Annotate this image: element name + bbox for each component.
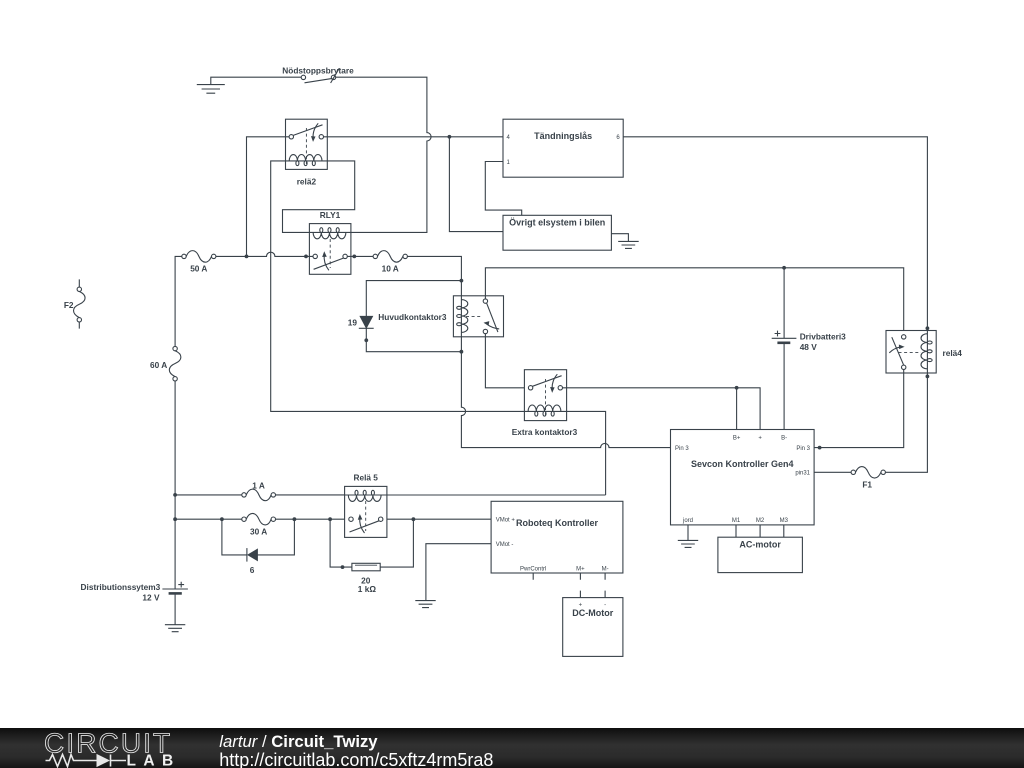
svg-text:Drivbatteri3: Drivbatteri3 — [800, 332, 846, 342]
svg-text:PwrContrl: PwrContrl — [520, 567, 546, 573]
svg-text:48 V: 48 V — [800, 342, 818, 352]
svg-text:60 A: 60 A — [150, 360, 167, 370]
svg-text:30 A: 30 A — [250, 526, 267, 536]
svg-text:50 A: 50 A — [190, 263, 207, 273]
svg-text:Relä 5: Relä 5 — [353, 473, 378, 483]
svg-text:DC-Motor: DC-Motor — [572, 608, 613, 618]
svg-text:M-: M- — [602, 567, 609, 573]
svg-text:M+: M+ — [576, 567, 585, 573]
svg-text:RLY1: RLY1 — [320, 210, 341, 220]
svg-text:Distributionssytem3: Distributionssytem3 — [81, 582, 161, 592]
svg-text:http://circuitlab.com/c5xftz4r: http://circuitlab.com/c5xftz4rm5ra8 — [219, 750, 493, 768]
svg-text:Roboteq Kontroller: Roboteq Kontroller — [516, 518, 598, 528]
svg-text:AC-motor: AC-motor — [739, 539, 781, 549]
svg-text:VMot -: VMot - — [496, 542, 514, 548]
svg-text:+: + — [758, 436, 762, 442]
svg-text:M2: M2 — [756, 518, 765, 524]
svg-text:Sevcon Kontroller Gen4: Sevcon Kontroller Gen4 — [691, 459, 794, 469]
svg-text:1 kΩ: 1 kΩ — [358, 584, 377, 594]
svg-text:M3: M3 — [780, 518, 789, 524]
svg-text:Huvudkontaktor3: Huvudkontaktor3 — [378, 312, 447, 322]
svg-text:pin31: pin31 — [795, 471, 810, 477]
svg-text:B+: B+ — [733, 436, 741, 442]
svg-text:1 A: 1 A — [252, 480, 265, 490]
svg-text:12 V: 12 V — [142, 592, 160, 602]
svg-text:relä4: relä4 — [943, 348, 963, 358]
svg-text:B-: B- — [781, 436, 787, 442]
svg-text:19: 19 — [348, 318, 358, 328]
svg-text:Pin 3: Pin 3 — [796, 446, 810, 452]
svg-text:Övrigt elsystem i bilen: Övrigt elsystem i bilen — [509, 217, 605, 227]
svg-text:lartur / Circuit_Twizy: lartur / Circuit_Twizy — [219, 732, 378, 751]
svg-text:Tändningslås: Tändningslås — [534, 131, 592, 141]
svg-text:Pin 3: Pin 3 — [675, 446, 689, 452]
svg-text:jord: jord — [682, 518, 693, 524]
svg-text:VMot +: VMot + — [496, 518, 516, 524]
svg-text:10 A: 10 A — [382, 263, 399, 273]
svg-text:F2: F2 — [64, 300, 74, 310]
svg-text:F1: F1 — [862, 480, 872, 490]
svg-text:relä2: relä2 — [297, 176, 317, 186]
svg-text:M1: M1 — [732, 518, 741, 524]
svg-text:LAB: LAB — [127, 753, 181, 768]
svg-text:6: 6 — [250, 565, 255, 575]
svg-text:Extra kontaktor3: Extra kontaktor3 — [512, 427, 578, 437]
svg-text:Nödstoppsbrytare: Nödstoppsbrytare — [282, 65, 354, 75]
